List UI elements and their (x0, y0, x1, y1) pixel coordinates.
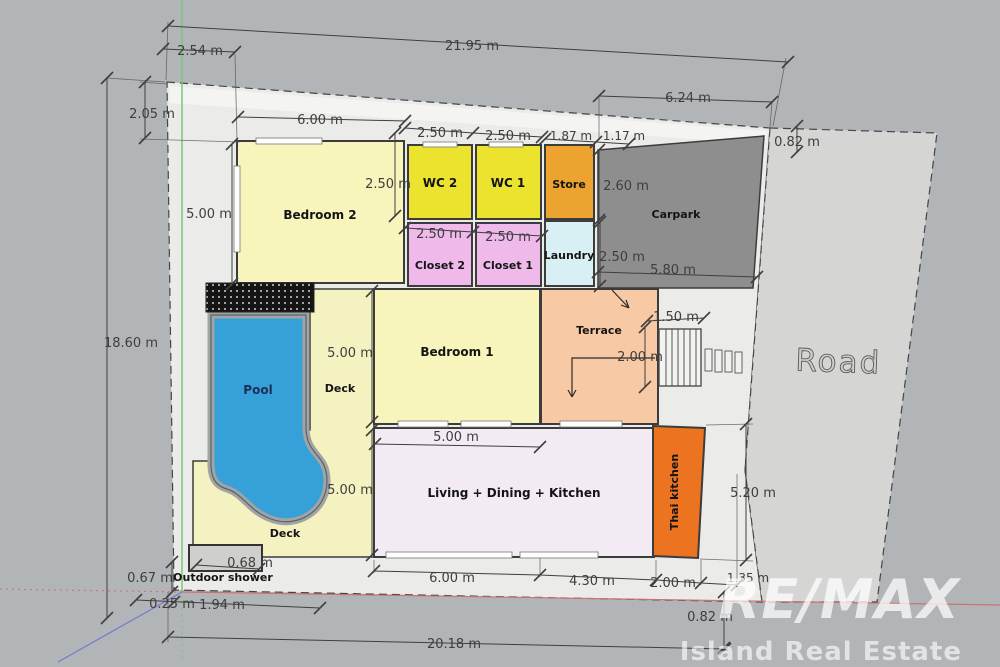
dim-label: 2.50 m (417, 126, 463, 141)
pool-hatch-strip (206, 283, 314, 312)
dim-label: 6.00 m (297, 113, 343, 128)
dim-label: 5.00 m (327, 346, 373, 361)
watermark-brand: RE/MAX (719, 568, 962, 631)
dim-label: 5.20 m (730, 486, 776, 501)
dim-label: 5.00 m (327, 483, 373, 498)
dim-label: 6.00 m (429, 571, 475, 586)
road-label: Road (795, 343, 882, 382)
dim-label: 1.50 m (653, 310, 699, 325)
stairs (659, 329, 701, 386)
dim-label: 4.30 m (569, 574, 615, 589)
room-label-bedroom2: Bedroom 2 (283, 208, 356, 222)
room-label-store: Store (552, 178, 586, 191)
room-label-wc2: WC 2 (423, 176, 458, 190)
dim-label: 6.24 m (665, 91, 711, 106)
floor-plan-drawing: 21.95 m 2.54 m 2.05 m 18.60 m 6.00 m 2.5… (0, 0, 1000, 667)
dim-label: 2.05 m (129, 107, 175, 122)
dim-label: 0.68 m (227, 556, 273, 571)
room-label-closet1: Closet 1 (483, 259, 533, 272)
room-label-closet2: Closet 2 (415, 259, 465, 272)
dim-label: 18.60 m (104, 336, 158, 351)
dim-label: 1.87 m (550, 129, 592, 143)
dim-label: 2.50 m (485, 129, 531, 144)
dim-label: 1.17 m (603, 129, 645, 143)
room-label-terrace: Terrace (576, 324, 622, 337)
dim-label: 1.94 m (199, 598, 245, 613)
dim-label: 5.00 m (433, 430, 479, 445)
dim-label: 2.60 m (603, 179, 649, 194)
room-label-pool: Pool (243, 383, 272, 397)
dim-label: 5.80 m (650, 263, 696, 278)
dim-label: 5.00 m (186, 207, 232, 222)
dim-label: 2.50 m (416, 227, 462, 242)
room-label-wc1: WC 1 (491, 176, 526, 190)
room-label-deck-upper: Deck (325, 382, 356, 395)
room-label-deck-lower: Deck (270, 527, 301, 540)
dim-label: 2.54 m (177, 44, 223, 59)
room-label-laundry: Laundry (544, 249, 595, 262)
room-label-bedroom1: Bedroom 1 (420, 345, 493, 359)
pool-shape (206, 283, 327, 522)
watermark: RE/MAX Island Real Estate (680, 568, 962, 667)
room-label-outdoor-shower: Outdoor shower (173, 571, 273, 584)
room-label-carpark: Carpark (652, 208, 702, 221)
dim-label: 2.00 m (650, 576, 696, 591)
dim-label: 0.67 m (127, 571, 173, 586)
dim-label: 2.50 m (599, 250, 645, 265)
dim-label: 2.50 m (485, 230, 531, 245)
dim-label: 2.50 m (365, 177, 411, 192)
room-label-thai-kitchen: Thai kitchen (668, 454, 681, 530)
watermark-tagline: Island Real Estate (680, 637, 962, 667)
dim-label: 0.82 m (774, 135, 820, 150)
room-label-living: Living + Dining + Kitchen (428, 486, 601, 500)
dim-label: 2.00 m (617, 350, 663, 365)
dim-label: 20.18 m (427, 637, 481, 652)
dim-label: 0.25 m (149, 597, 195, 612)
floor-plan-canvas: 21.95 m 2.54 m 2.05 m 18.60 m 6.00 m 2.5… (0, 0, 1000, 667)
dim-label: 21.95 m (445, 39, 499, 54)
